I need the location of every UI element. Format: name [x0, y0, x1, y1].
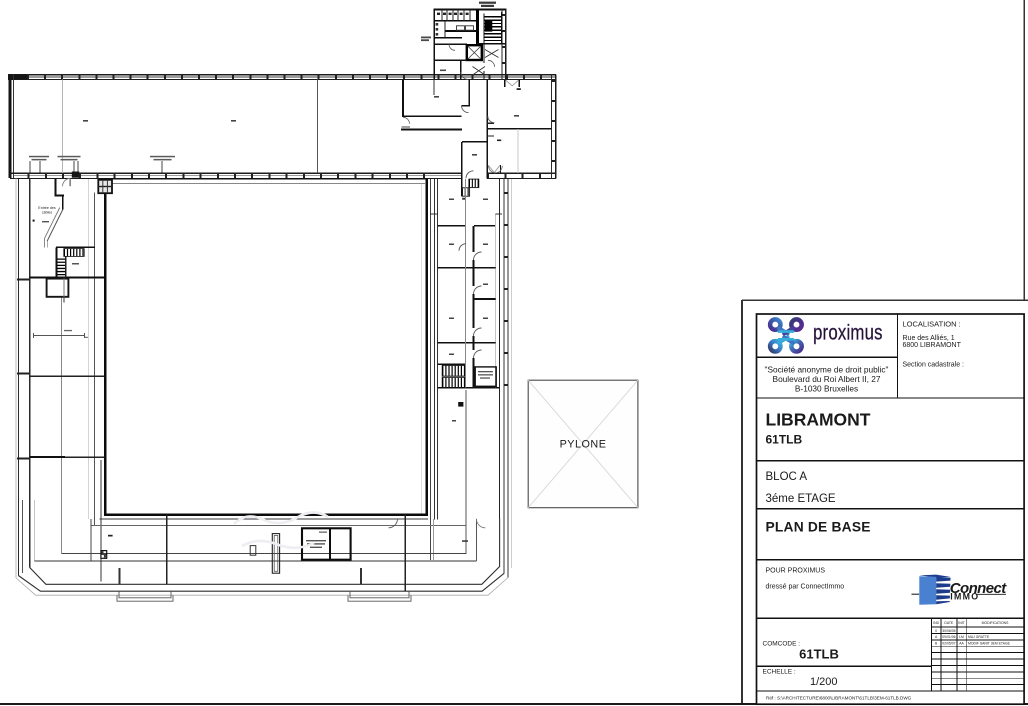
svg-text:02/05/07: 02/05/07	[942, 642, 955, 646]
svg-text:6800 LIBRAMONT: 6800 LIBRAMONT	[903, 342, 962, 349]
svg-text:LM: LM	[959, 635, 964, 639]
svg-text:30/06/05: 30/06/05	[942, 629, 955, 633]
svg-text:DATE: DATE	[944, 621, 954, 625]
svg-text:3éme ETAGE: 3éme ETAGE	[766, 493, 836, 505]
svg-text:Boulevard du Roi Albert II, 27: Boulevard du Roi Albert II, 27	[773, 374, 881, 384]
svg-text:PLAN DE BASE: PLAN DE BASE	[766, 520, 871, 535]
svg-text:INIT: INIT	[958, 621, 964, 625]
svg-text:MODIF SANIT 3EM ETAGE: MODIF SANIT 3EM ETAGE	[968, 642, 1011, 646]
svg-text:proximus: proximus	[813, 322, 883, 345]
svg-text:LIBRAMONT: LIBRAMONT	[766, 410, 871, 430]
svg-text:câbles: câbles	[42, 211, 53, 215]
svg-text:IMMO: IMMO	[950, 592, 979, 602]
svg-text:1/200: 1/200	[810, 676, 838, 688]
svg-text:dressé par ConnectImmo: dressé par ConnectImmo	[766, 584, 845, 591]
svg-text:61TLB: 61TLB	[799, 647, 839, 662]
svg-text:"Société anonyme de droit publ: "Société anonyme de droit public"	[765, 365, 889, 375]
svg-text:LOCALISATION :: LOCALISATION :	[903, 320, 961, 329]
svg-text:61TLB: 61TLB	[766, 433, 803, 447]
svg-text:09/01/06: 09/01/06	[942, 635, 955, 639]
svg-text:COMCODE :: COMCODE :	[763, 641, 801, 648]
svg-text:MAJ GRATTE: MAJ GRATTE	[968, 635, 990, 639]
svg-text:Section cadastrale :: Section cadastrale :	[903, 362, 965, 369]
svg-text:Entrée des: Entrée des	[38, 206, 56, 210]
svg-text:0: 0	[935, 629, 937, 633]
svg-text:Rue des Alliés, 1: Rue des Alliés, 1	[903, 335, 955, 342]
svg-text:IND: IND	[933, 621, 939, 625]
svg-text:Réf : S:\ARCHITECTURE\6800\: Réf : S:\ARCHITECTURE\6800\LIBRAMONT\61T…	[766, 696, 912, 701]
svg-text:MODIFICATIONS: MODIFICATIONS	[982, 621, 1009, 625]
svg-text:POUR PROXIMUS: POUR PROXIMUS	[766, 568, 826, 575]
svg-text:BLOC A: BLOC A	[766, 471, 808, 483]
svg-text:PYLONE: PYLONE	[560, 439, 607, 451]
svg-text:ECHELLE :: ECHELLE :	[763, 669, 796, 676]
svg-text:AA: AA	[959, 642, 964, 646]
svg-text:B-1030 Bruxelles: B-1030 Bruxelles	[795, 384, 858, 394]
